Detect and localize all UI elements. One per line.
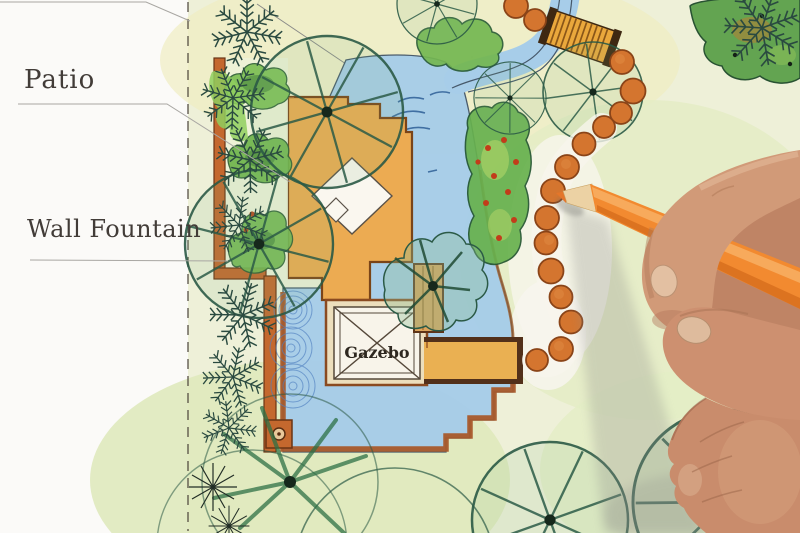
tree-symbol [185, 170, 333, 318]
gazebo-label: Gazebo [344, 343, 409, 362]
patio-label: Patio [24, 65, 95, 95]
boardwalk [424, 337, 523, 384]
landscape-plan-photo: Gazebo [0, 0, 800, 533]
leader-line-top [0, 2, 190, 21]
wall-fountain-label: Wall Fountain [27, 215, 201, 243]
